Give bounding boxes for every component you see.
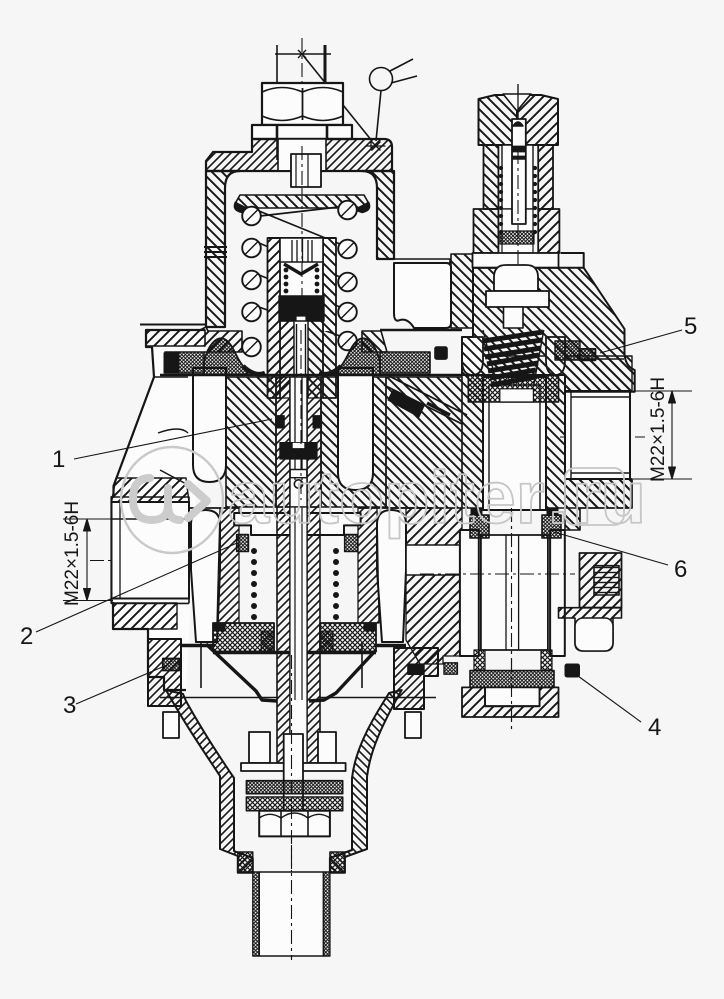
svg-text:5: 5 <box>684 313 697 340</box>
svg-text:M22×1.5-6H: M22×1.5-6H <box>648 377 669 482</box>
svg-text:4: 4 <box>648 714 661 741</box>
svg-text:6: 6 <box>674 556 687 583</box>
svg-text:2: 2 <box>20 623 33 650</box>
svg-text:1: 1 <box>52 446 65 473</box>
svg-text:autopiter: autopiter <box>228 456 545 539</box>
svg-text:3: 3 <box>63 692 76 719</box>
svg-text:M22×1.5-6H: M22×1.5-6H <box>62 501 83 606</box>
